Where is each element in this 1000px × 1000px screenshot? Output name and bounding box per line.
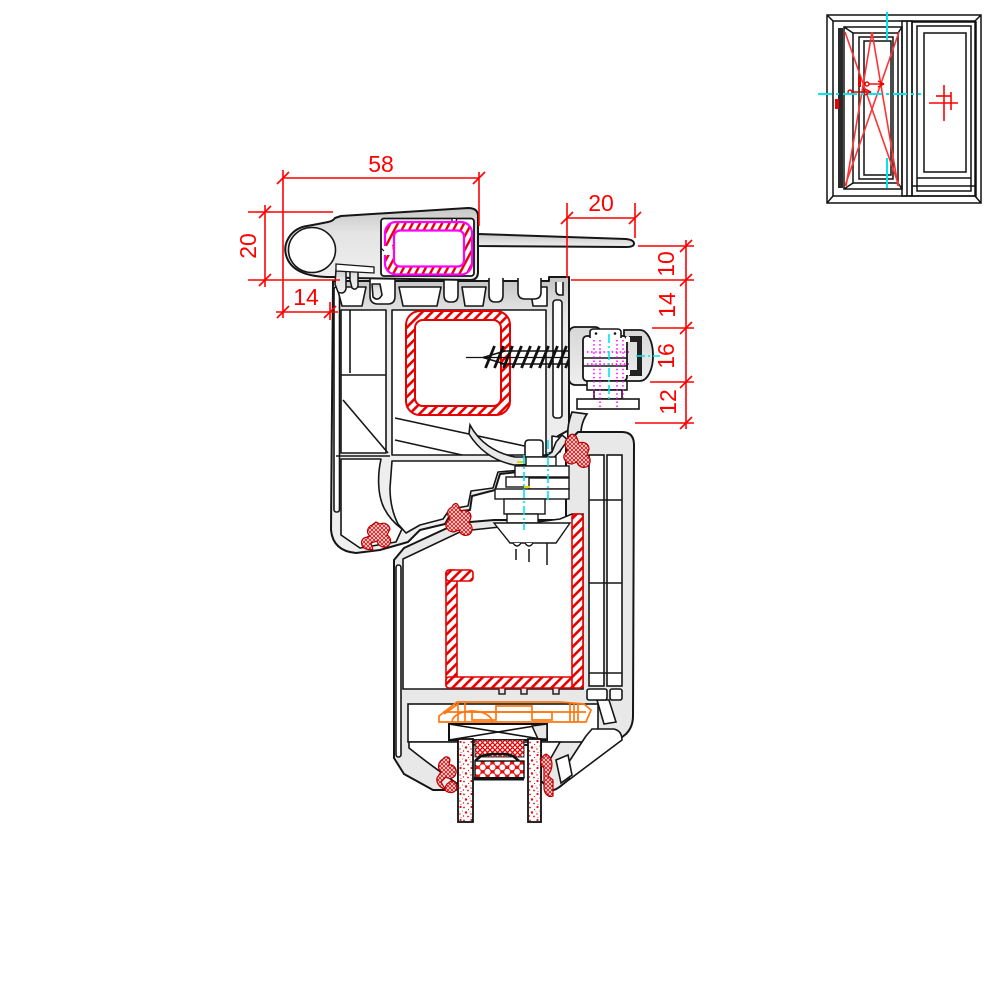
svg-text:20: 20	[235, 233, 261, 259]
svg-text:58: 58	[368, 151, 394, 177]
svg-text:14: 14	[293, 284, 319, 310]
svg-text:20: 20	[588, 190, 614, 216]
svg-text:16: 16	[653, 343, 679, 369]
svg-text:10: 10	[653, 251, 679, 277]
svg-text:12: 12	[655, 389, 681, 415]
svg-text:14: 14	[654, 292, 680, 318]
